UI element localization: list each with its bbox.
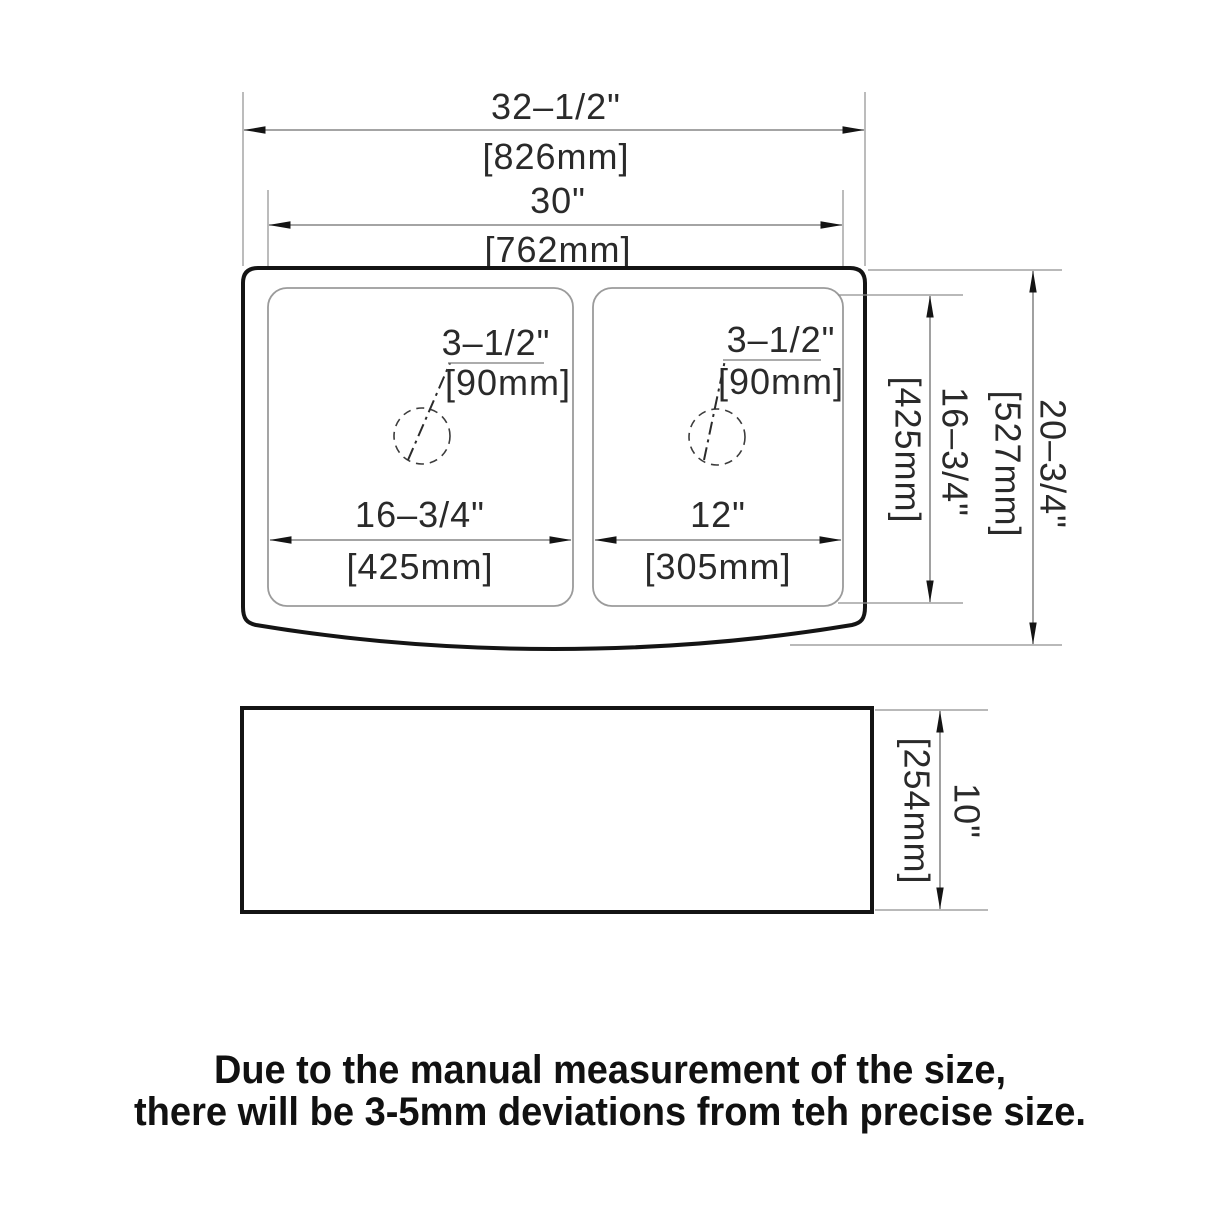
right-bowl-width-mm-label: [305mm] <box>644 546 791 587</box>
measurement-note: Due to the manual measurement of the siz… <box>134 1048 1086 1134</box>
bowl-span-inches-label: 30" <box>530 180 586 221</box>
bowl-depth-mm-label: [425mm] <box>888 376 929 523</box>
overall-depth-mm-label: [527mm] <box>988 390 1029 537</box>
sink-dimension-diagram: 32–1/2" [826mm] 30" [762mm] 3–1/2 <box>0 0 1214 1214</box>
side-view-outline <box>242 708 872 912</box>
left-drain-mm-label: [90mm] <box>445 362 571 403</box>
left-drain-inches-label: 3–1/2" <box>442 322 551 363</box>
overall-depth-inches-label: 20–3/4" <box>1033 399 1074 529</box>
overall-width-mm-label: [826mm] <box>482 136 629 177</box>
height-mm-label: [254mm] <box>897 737 938 884</box>
sink-top-view: 32–1/2" [826mm] 30" [762mm] 3–1/2 <box>243 86 1074 649</box>
left-bowl-width-mm-label: [425mm] <box>346 546 493 587</box>
sink-side-view: 10" [254mm] <box>242 708 988 912</box>
left-bowl-width-inches-label: 16–3/4" <box>355 494 485 535</box>
dim-height: 10" [254mm] <box>875 710 988 910</box>
sink-dimension-diagram-page: 32–1/2" [826mm] 30" [762mm] 3–1/2 <box>0 0 1214 1214</box>
note-line-2: there will be 3-5mm deviations from teh … <box>134 1090 1086 1134</box>
right-drain-mm-label: [90mm] <box>718 361 844 402</box>
bowl-depth-inches-label: 16–3/4" <box>935 387 976 517</box>
bowl-span-mm-label: [762mm] <box>484 229 631 270</box>
overall-width-inches-label: 32–1/2" <box>491 86 621 127</box>
dim-bowl-span: 30" [762mm] <box>268 180 843 270</box>
note-line-1: Due to the manual measurement of the siz… <box>214 1048 1006 1092</box>
height-inches-label: 10" <box>947 783 988 839</box>
right-drain-inches-label: 3–1/2" <box>727 319 836 360</box>
right-bowl-width-inches-label: 12" <box>690 494 746 535</box>
